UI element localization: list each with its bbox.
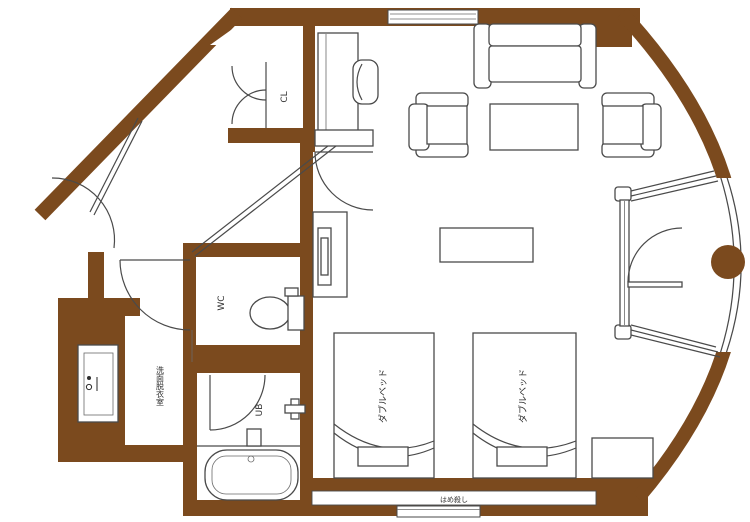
bench (592, 438, 653, 478)
toilet (250, 288, 304, 330)
top-window (388, 10, 478, 24)
washroom-label: 洗面脱衣室 (156, 365, 165, 406)
sofa (474, 24, 596, 88)
bath-door (210, 375, 265, 430)
desk-chair (353, 60, 378, 104)
window-note-label: はめ殺し (440, 495, 468, 504)
living-room-door (315, 152, 373, 210)
tv-board (313, 212, 347, 297)
wc-room: WC (217, 288, 304, 330)
wc-ub-wall (183, 345, 313, 373)
bathroom: UB (197, 399, 305, 500)
bay-frame-cap-bottom (615, 325, 631, 339)
desk (318, 33, 358, 145)
bed1-label: ダブルベッド (377, 369, 389, 423)
faucet-icon (87, 376, 91, 380)
exterior-vent (397, 506, 480, 517)
floor-plan: はめ殺し (0, 0, 750, 522)
wc-label: WC (217, 295, 227, 310)
bay-window (615, 171, 720, 357)
bed-2: ダブルベッド (473, 333, 576, 478)
bathtub (205, 450, 298, 500)
ub-label: UB (255, 404, 265, 417)
bath-step (247, 429, 261, 446)
closet: CL (280, 91, 290, 102)
ub-left-wall (183, 360, 197, 516)
floor-plan-drawing: はめ殺し (0, 0, 750, 522)
bed-1: ダブルベッド (334, 333, 434, 478)
furniture: ダブルベッド ダブルベッド (313, 24, 661, 478)
left-wing-bottom-wall (58, 445, 197, 462)
vanity-counter (78, 345, 118, 422)
closet-label: CL (280, 91, 290, 102)
armchair-left (409, 93, 468, 157)
armchair-right (602, 93, 661, 157)
closet-bottom-wall (228, 128, 315, 143)
balcony-door (628, 228, 682, 287)
top-right-wedge (592, 26, 632, 47)
bed2-label: ダブルベッド (517, 369, 529, 423)
ub-bottom-wall (183, 500, 315, 516)
bottom-window: はめ殺し (312, 491, 596, 505)
diagonal-wall (40, 13, 237, 215)
coffee-table (490, 104, 578, 150)
bay-frame-cap-top (615, 187, 631, 201)
table (440, 228, 533, 262)
shelf (315, 130, 373, 146)
entrance-stub-wall (88, 252, 104, 308)
closet-doors (232, 62, 266, 128)
column (711, 245, 745, 279)
